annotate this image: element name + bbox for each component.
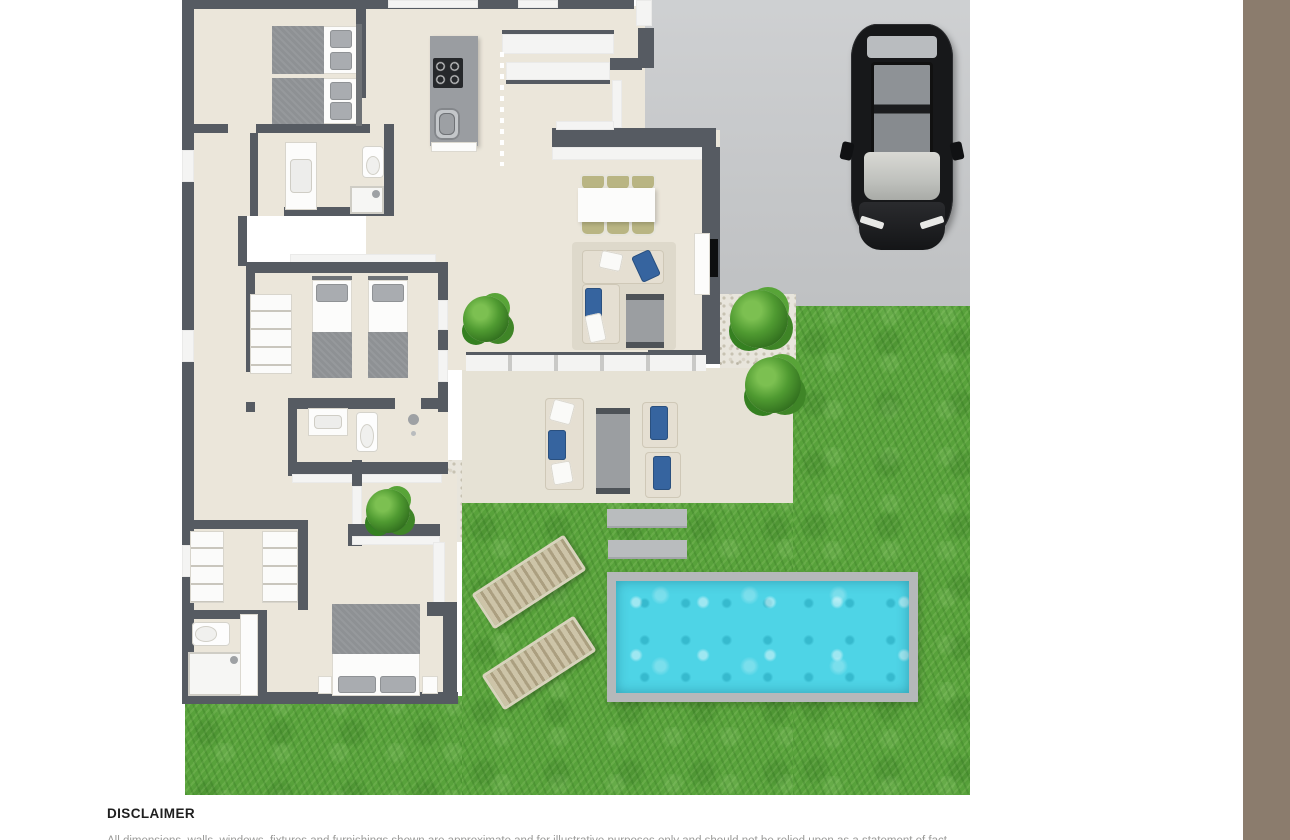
window [518, 0, 558, 8]
door-opening [228, 124, 256, 133]
door-opening [258, 207, 284, 216]
wall [352, 460, 362, 488]
wall [186, 520, 300, 529]
car-windshield [864, 152, 940, 200]
nightstand [422, 676, 438, 694]
wall [443, 616, 457, 704]
bed-pillow [372, 284, 404, 302]
car-rear-window [867, 36, 937, 58]
vanity-sink [285, 142, 317, 210]
door-opening [395, 398, 421, 409]
window [433, 542, 445, 604]
lawn-right [793, 306, 970, 795]
bed-pillow [330, 82, 352, 100]
pool-water [616, 581, 909, 693]
right-margin-band [1243, 0, 1290, 840]
lawn-bottom-left [185, 696, 462, 795]
wall-face [352, 536, 440, 545]
entry-wall [502, 30, 614, 54]
bed-pillow [330, 30, 352, 48]
disclaimer-body-clipped: All dimensions, walls, windows, fixtures… [107, 835, 1230, 840]
wall [288, 462, 448, 474]
bed-pillow [380, 676, 416, 693]
armchair-cushion [653, 456, 671, 490]
garden-bush [366, 489, 410, 533]
wall [238, 216, 247, 266]
dining-table [578, 188, 655, 222]
window [388, 0, 478, 8]
entry-wall [506, 62, 610, 84]
nightstand [318, 676, 332, 694]
wall [298, 520, 308, 610]
window [438, 300, 448, 330]
toilet [192, 622, 230, 646]
window [438, 350, 448, 382]
cooktop [433, 58, 463, 88]
floorplan-page: { "disclaimer": { "title": "DISCLAIMER",… [0, 0, 1290, 840]
toilet [362, 146, 384, 178]
wall [438, 262, 448, 412]
wall [246, 262, 448, 273]
closet-shelving [190, 531, 224, 603]
toilet [356, 412, 378, 452]
bed-pillow [330, 102, 352, 120]
headboard [356, 24, 362, 76]
wardrobe [250, 294, 292, 374]
outdoor-pillow-blue [548, 430, 566, 460]
headboard [356, 76, 362, 126]
dining-chair [632, 221, 654, 234]
armchair-cushion [650, 406, 668, 440]
black-car [851, 24, 953, 240]
front-door [636, 0, 652, 26]
garden-bush [745, 357, 801, 413]
wall-face [292, 474, 442, 483]
wall [384, 124, 394, 216]
glass-partition [500, 52, 504, 166]
wall [427, 602, 457, 616]
wall [193, 124, 370, 133]
tv-cabinet [694, 233, 710, 295]
window [556, 121, 614, 130]
tv [710, 239, 718, 277]
garden-bush [730, 290, 788, 348]
kitchen-sink [434, 108, 460, 140]
closet-shelving [262, 531, 298, 603]
bed-blanket [368, 332, 408, 378]
outdoor-coffee-table [596, 408, 630, 494]
shower [188, 652, 242, 696]
outdoor-pillow-white [550, 460, 574, 485]
dining-chair [582, 221, 604, 234]
bed-blanket [272, 26, 324, 74]
bed-pillow [316, 284, 348, 302]
bed-blanket [272, 78, 324, 124]
kitchen-cabinet [431, 142, 477, 152]
wall [250, 133, 258, 216]
stepping-stone [608, 540, 687, 557]
sliding-glass-door [466, 352, 706, 371]
wall-face [552, 147, 716, 160]
coffee-table [626, 294, 664, 348]
disclaimer-title: DISCLAIMER [107, 806, 195, 821]
bed-pillow [330, 52, 352, 70]
garden-bush [463, 296, 509, 342]
sink [308, 408, 348, 436]
shower-head [408, 414, 419, 425]
wall [552, 128, 716, 147]
window [182, 330, 194, 362]
floorplan-image [180, 0, 970, 795]
bed-blanket [312, 332, 352, 378]
bed-blanket [332, 604, 420, 654]
swimming-pool [607, 572, 918, 702]
car-sunroof [871, 62, 933, 156]
bed-pillow [338, 676, 376, 693]
door-opening [246, 372, 255, 402]
wall [610, 58, 642, 70]
shower [350, 186, 384, 214]
wall [258, 610, 267, 698]
window [352, 486, 362, 526]
vanity-counter [240, 614, 258, 696]
window [182, 150, 194, 182]
dining-chair [607, 221, 629, 234]
car-mirror [839, 141, 854, 161]
stepping-stone [607, 509, 687, 526]
